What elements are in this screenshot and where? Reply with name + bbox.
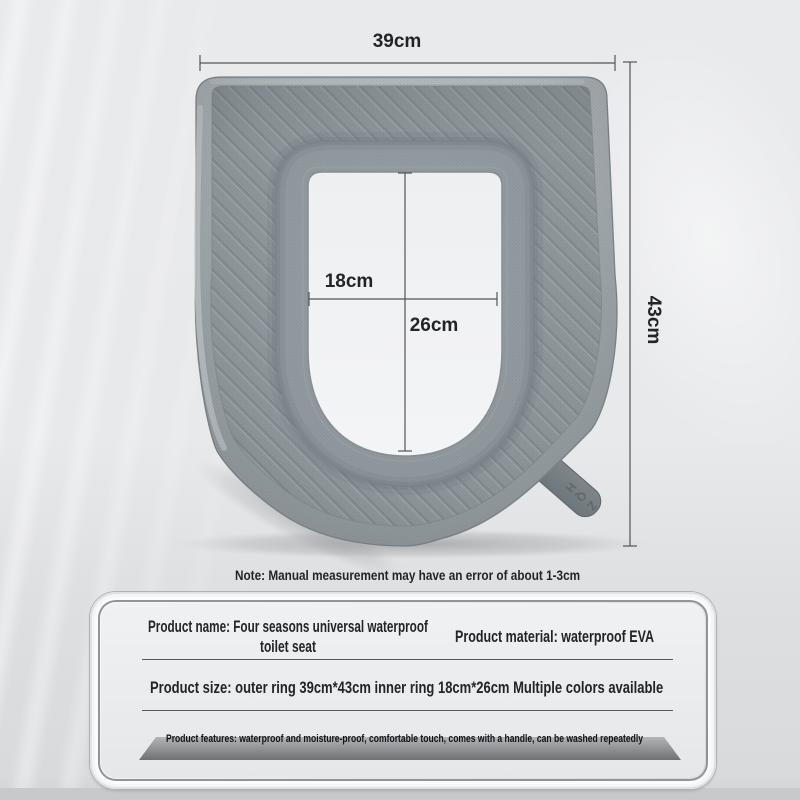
svg-text:43cm: 43cm xyxy=(643,296,664,345)
svg-text:18cm: 18cm xyxy=(325,271,374,292)
svg-text:26cm: 26cm xyxy=(410,315,459,336)
svg-text:39cm: 39cm xyxy=(373,31,422,52)
